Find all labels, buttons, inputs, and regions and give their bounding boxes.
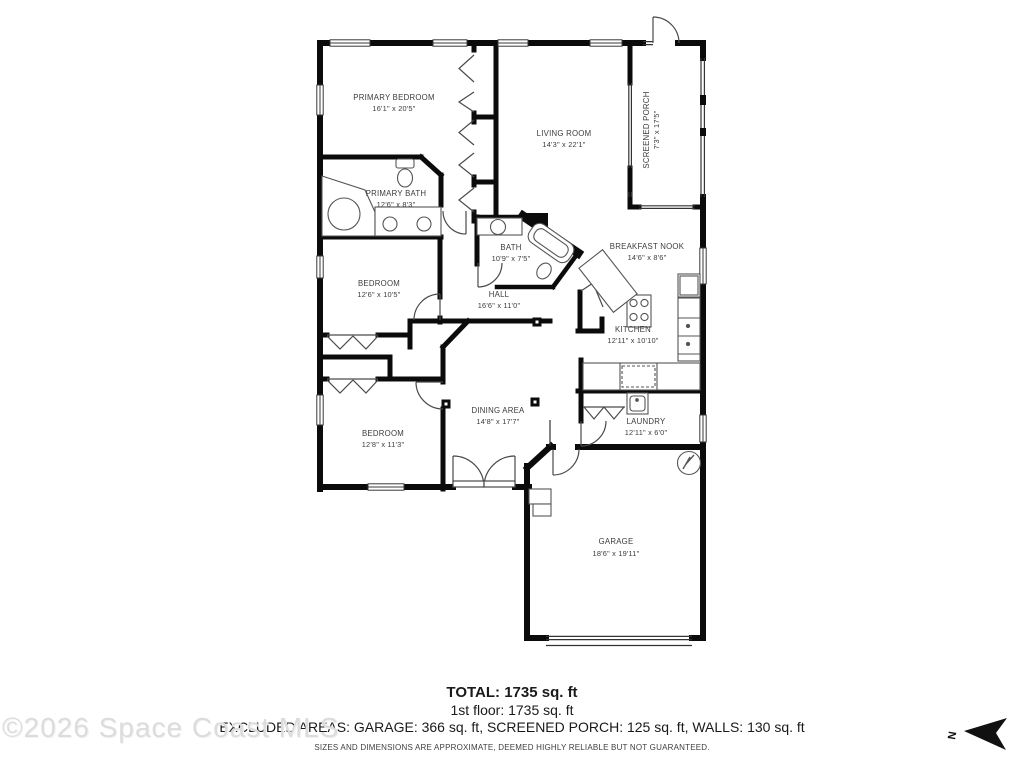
- room-label-hall: HALL 16'6" x 11'0": [478, 290, 521, 310]
- toilet-bowl: [398, 169, 413, 187]
- svg-text:PRIMARY BATH: PRIMARY BATH: [366, 189, 427, 198]
- toilet-tank: [396, 159, 414, 168]
- mls-watermark: ©2026 Space Coast MLS: [2, 712, 339, 744]
- svg-text:14'8" x 17'7": 14'8" x 17'7": [476, 417, 519, 426]
- room-label-primary-bedroom: PRIMARY BEDROOM 16'1" x 20'5": [353, 93, 434, 113]
- garage-step: [529, 489, 551, 504]
- svg-text:10'9" x 7'5": 10'9" x 7'5": [492, 254, 531, 263]
- room-label-bath: BATH 10'9" x 7'5": [492, 243, 531, 263]
- svg-text:12'6" x 10'5": 12'6" x 10'5": [357, 290, 400, 299]
- kitchen-counter-right: [678, 298, 700, 361]
- svg-text:BATH: BATH: [500, 243, 521, 252]
- svg-text:16'1" x 20'5": 16'1" x 20'5": [372, 104, 415, 113]
- room-label-living-room: LIVING ROOM 14'3" x 22'1": [537, 129, 592, 149]
- toilet-bowl-2: [534, 260, 554, 281]
- svg-text:BEDROOM: BEDROOM: [358, 279, 400, 288]
- svg-text:12'11" x 10'10": 12'11" x 10'10": [607, 336, 658, 345]
- svg-text:PRIMARY BEDROOM: PRIMARY BEDROOM: [353, 93, 434, 102]
- room-label-laundry: LAUNDRY 12'11" x 6'0": [625, 417, 668, 437]
- kitchen-island: [627, 295, 651, 327]
- svg-text:LAUNDRY: LAUNDRY: [627, 417, 666, 426]
- svg-text:LIVING ROOM: LIVING ROOM: [537, 129, 592, 138]
- floorplan-canvas: PRIMARY BEDROOM 16'1" x 20'5" LIVING ROO…: [0, 0, 1024, 768]
- svg-text:7'3" x 17'5": 7'3" x 17'5": [652, 110, 661, 149]
- room-label-primary-bath: PRIMARY BATH 12'6" x 8'3": [366, 189, 427, 209]
- room-label-bedroom-2: BEDROOM 12'8" x 11'3": [362, 429, 405, 449]
- svg-text:HALL: HALL: [489, 290, 510, 299]
- room-label-screened-porch: SCREENED PORCH 7'3" x 17'5": [642, 91, 661, 168]
- svg-text:SCREENED PORCH: SCREENED PORCH: [642, 91, 651, 168]
- room-label-garage: GARAGE 18'6" x 19'11": [593, 537, 640, 558]
- room-label-dining-area: DINING AREA 14'8" x 17'7": [471, 406, 525, 426]
- total-area-text: TOTAL: 1735 sq. ft: [0, 684, 1024, 701]
- svg-text:12'8" x 11'3": 12'8" x 11'3": [362, 440, 405, 449]
- svg-text:12'6" x 8'3": 12'6" x 8'3": [377, 200, 416, 209]
- svg-text:BREAKFAST NOOK: BREAKFAST NOOK: [610, 242, 685, 251]
- svg-text:KITCHEN: KITCHEN: [615, 325, 651, 334]
- room-label-bedroom-1: BEDROOM 12'6" x 10'5": [357, 279, 400, 299]
- disclaimer-text: SIZES AND DIMENSIONS ARE APPROXIMATE, DE…: [0, 743, 1024, 752]
- svg-text:BEDROOM: BEDROOM: [362, 429, 404, 438]
- svg-text:14'3" x 22'1": 14'3" x 22'1": [542, 140, 585, 149]
- svg-text:16'6" x 11'0": 16'6" x 11'0": [478, 301, 521, 310]
- water-heater-icon: [678, 452, 701, 475]
- svg-text:18'6" x 19'11": 18'6" x 19'11": [593, 549, 640, 558]
- svg-text:14'6" x 8'6": 14'6" x 8'6": [628, 253, 667, 262]
- svg-text:12'11" x 6'0": 12'11" x 6'0": [625, 428, 668, 437]
- room-label-kitchen: KITCHEN 12'11" x 10'10": [607, 325, 658, 345]
- svg-text:DINING AREA: DINING AREA: [471, 406, 525, 415]
- room-label-breakfast-nook: BREAKFAST NOOK 14'6" x 8'6": [610, 242, 685, 262]
- svg-text:GARAGE: GARAGE: [599, 537, 634, 546]
